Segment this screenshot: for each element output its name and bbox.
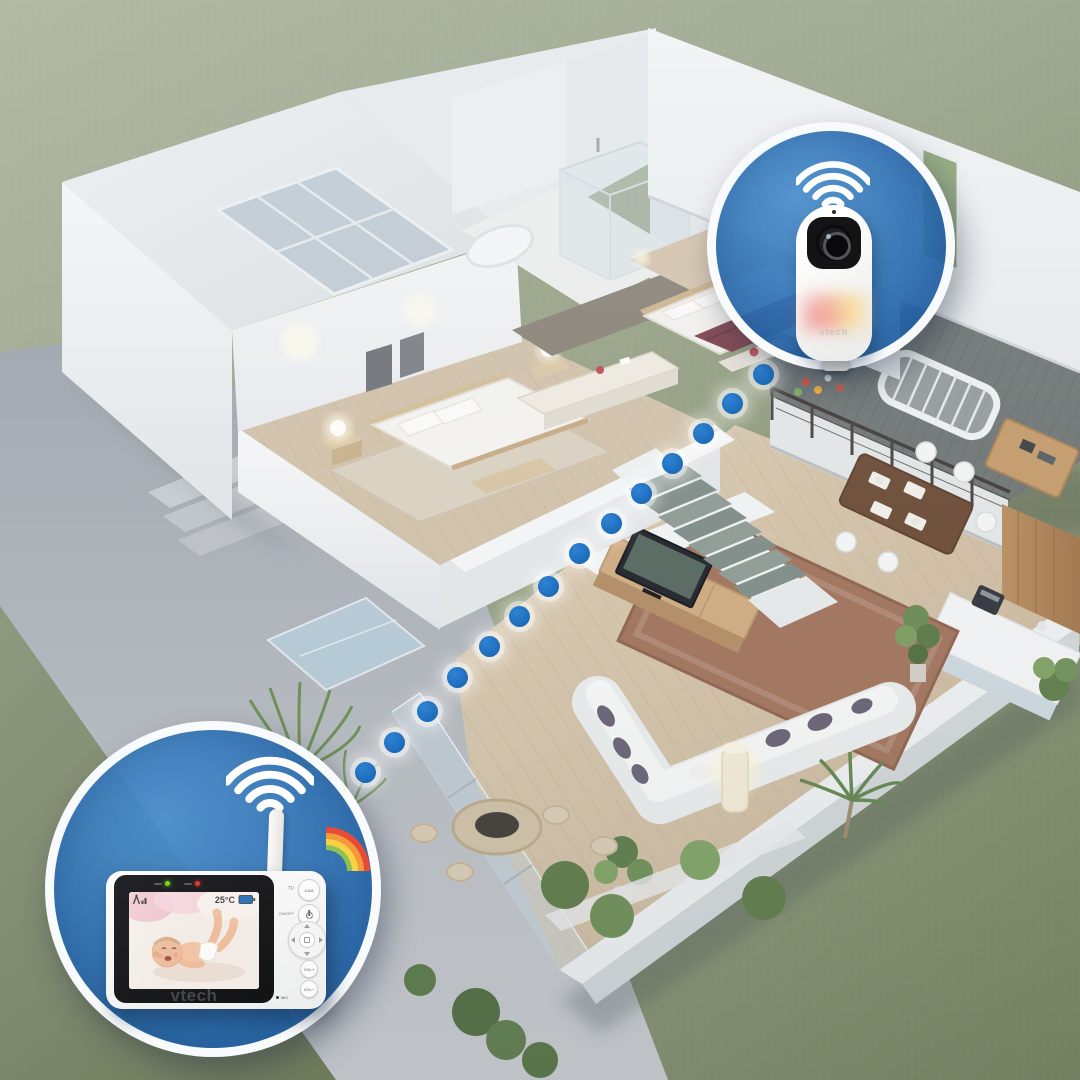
camera-lens-plate xyxy=(807,217,861,269)
led-label xyxy=(184,883,192,885)
arrow-right-icon xyxy=(319,937,323,943)
monitor-callout-circle: 25°C vtech TV CAM ON/OFF xyxy=(45,721,381,1057)
arrow-left-icon xyxy=(291,937,295,943)
baby-camera: vtech xyxy=(796,205,872,361)
volume-down-label: VOL− xyxy=(304,987,315,992)
signal-dot xyxy=(447,667,468,688)
video-screen: 25°C xyxy=(129,892,259,989)
power-led-indicator xyxy=(154,881,170,886)
signal-dot xyxy=(601,513,622,534)
camera-lens-icon xyxy=(816,225,852,261)
mic-indicator: MIC xyxy=(276,995,288,1000)
battery-icon xyxy=(238,894,256,905)
alert-led xyxy=(195,881,200,886)
product-connectivity-illustration: vtech xyxy=(0,0,1080,1080)
monitor-brand-logo: vtech xyxy=(114,986,274,1006)
power-led xyxy=(165,881,170,886)
cam-button-label: CAM xyxy=(304,888,313,893)
temperature-readout: 25°C xyxy=(215,895,235,905)
signal-dot xyxy=(693,423,714,444)
mic-dot-icon xyxy=(276,996,279,999)
power-icon xyxy=(304,910,314,920)
signal-dot xyxy=(538,576,559,597)
arrow-up-icon xyxy=(304,924,310,928)
alert-led-indicator xyxy=(184,881,200,886)
tv-label: TV xyxy=(278,886,294,892)
volume-up-label: VOL+ xyxy=(304,967,315,972)
mic-label: MIC xyxy=(281,995,288,1000)
cam-button[interactable]: CAM xyxy=(298,879,320,901)
signal-dot xyxy=(662,453,683,474)
signal-dot xyxy=(569,543,590,564)
signal-dot xyxy=(722,393,743,414)
arrow-down-icon xyxy=(304,952,310,956)
signal-dot xyxy=(384,732,405,753)
parent-monitor: 25°C vtech TV CAM ON/OFF xyxy=(106,871,326,1009)
wifi-icon xyxy=(796,157,870,212)
select-button[interactable] xyxy=(299,932,315,948)
directional-pad[interactable] xyxy=(288,921,326,959)
antenna-signal-icon xyxy=(132,894,148,905)
signal-dot xyxy=(355,762,376,783)
signal-dot xyxy=(479,636,500,657)
lens-glint xyxy=(826,234,831,239)
signal-dot xyxy=(509,606,530,627)
on-off-label: ON/OFF xyxy=(278,911,294,916)
led-label xyxy=(154,883,162,885)
signal-dot xyxy=(631,483,652,504)
wifi-icon xyxy=(226,752,314,817)
screen-status-bar: 25°C xyxy=(132,894,256,905)
screen-bezel: 25°C xyxy=(114,875,274,1003)
side-button-panel: TV CAM ON/OFF VOL+ VOL− xyxy=(276,871,326,1009)
volume-up-button[interactable]: VOL+ xyxy=(300,960,318,978)
screen-gloss xyxy=(129,892,259,989)
signal-dot xyxy=(753,364,774,385)
microphone-dot-icon xyxy=(832,210,836,214)
camera-brand-logo: vtech xyxy=(796,327,872,337)
signal-dot xyxy=(417,701,438,722)
camera-callout-circle: vtech xyxy=(707,122,955,370)
volume-down-button[interactable]: VOL− xyxy=(300,980,318,998)
